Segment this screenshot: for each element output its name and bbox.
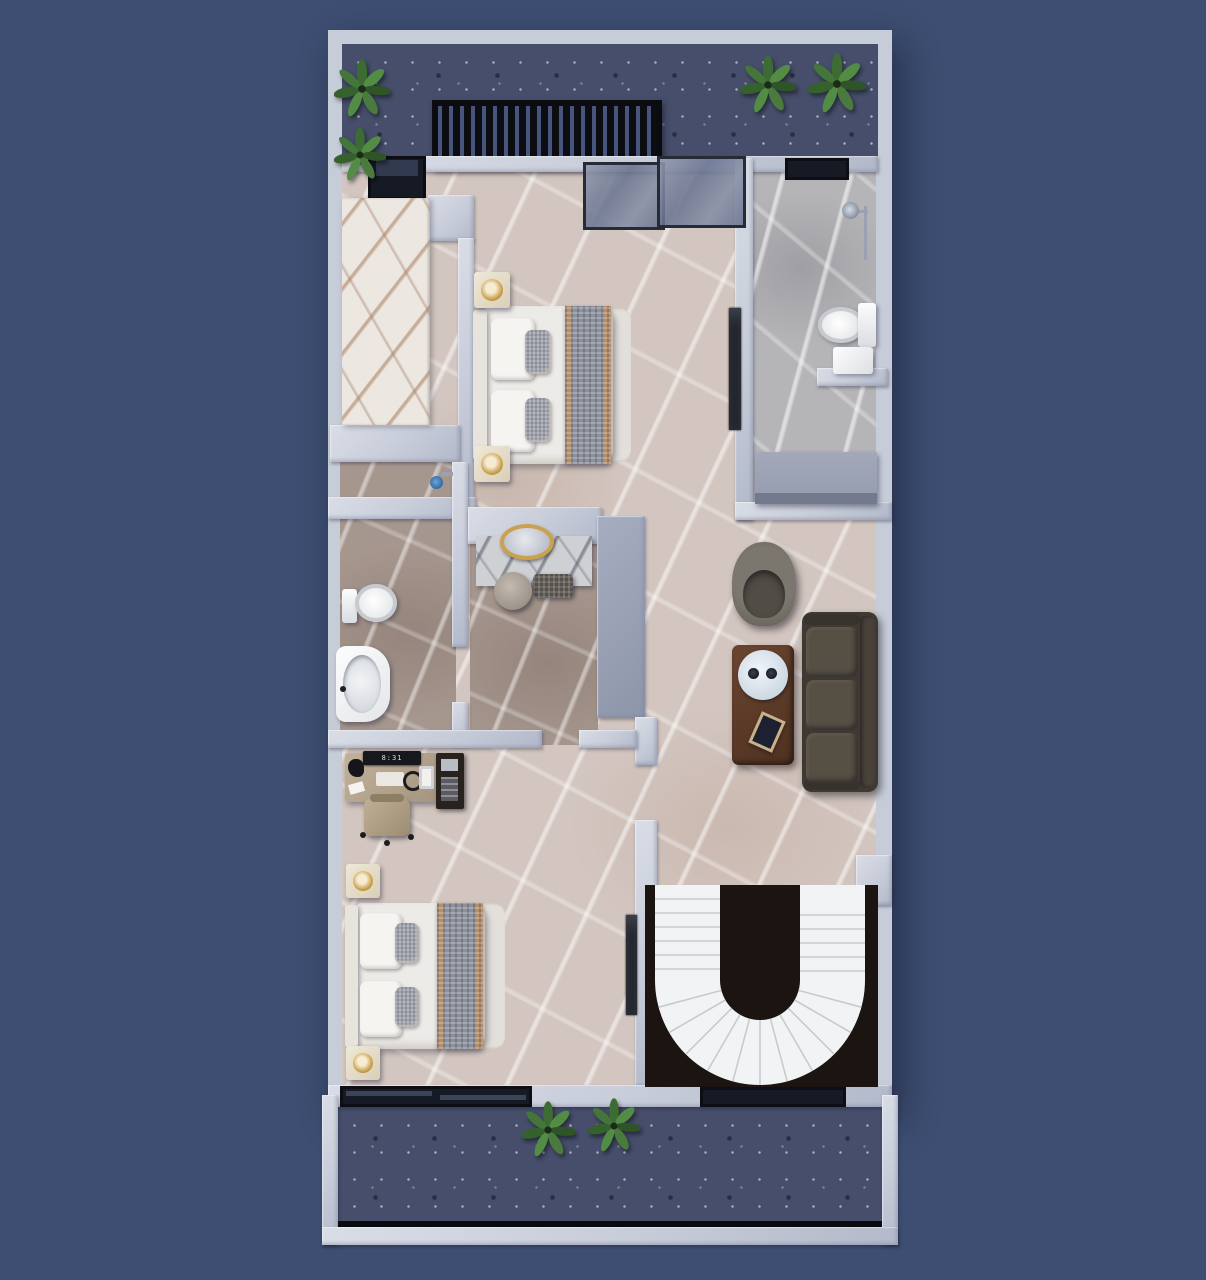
bedroom2-bed — [345, 903, 505, 1049]
ensuite-south-wall — [735, 502, 892, 520]
tablet — [419, 766, 434, 789]
armchair-seat — [743, 570, 785, 618]
potted-plant — [740, 42, 796, 128]
ensuite-terrace-window — [785, 158, 849, 180]
nightstand — [474, 272, 510, 308]
spiral-staircase — [645, 885, 878, 1087]
balcony-left-wall — [322, 1095, 338, 1245]
potted-plant — [808, 40, 866, 128]
bed-runner — [565, 306, 611, 464]
stairwell-balcony-window — [700, 1087, 846, 1107]
window-glass — [440, 1095, 526, 1100]
serving-tray — [738, 650, 788, 700]
bedroom2-balcony-window — [340, 1086, 532, 1107]
gold-lamp — [353, 871, 373, 891]
bathroom2-east-wall — [452, 462, 468, 647]
desk-lamp — [348, 759, 364, 777]
closet-corner-wall — [428, 195, 474, 241]
shelf-item — [441, 759, 458, 771]
gold-lamp — [481, 279, 503, 301]
sofa-seat-cushion — [806, 733, 858, 783]
sofa — [802, 612, 878, 792]
hall-divider-wall-a — [635, 717, 657, 765]
bed-runner — [437, 903, 483, 1049]
nightstand — [474, 446, 510, 482]
cup — [748, 668, 759, 679]
bed-headboard — [473, 310, 487, 460]
potted-plant — [521, 1098, 575, 1162]
glass-pane — [583, 162, 665, 230]
sink-faucet — [340, 686, 346, 692]
window-glass — [346, 1091, 432, 1096]
stair-flight-right — [800, 885, 865, 980]
sink-basin — [343, 655, 381, 713]
nightstand — [346, 1046, 380, 1080]
bathroom2-north-wall — [330, 425, 460, 462]
master-bed — [473, 306, 631, 464]
gold-lamp — [353, 1053, 373, 1073]
vanity-counter-edge — [755, 493, 877, 504]
ensuite-toilet-tank — [858, 303, 876, 347]
clock-display: 8:31 — [382, 755, 403, 762]
bed-accent-pillow — [395, 923, 419, 963]
bed-accent-pillow — [395, 987, 419, 1027]
terrace-sliding-glass-door — [583, 156, 740, 228]
shower-rail — [864, 206, 867, 260]
balcony-right-wall — [882, 1095, 898, 1245]
bed-accent-pillow — [525, 330, 551, 374]
dressing-bench — [533, 574, 573, 598]
cup — [766, 668, 777, 679]
ensuite-vanity-counter — [755, 452, 877, 504]
glass-pane — [657, 156, 746, 228]
potted-plant — [334, 124, 386, 186]
sofa-armrest — [804, 614, 860, 625]
armchair — [732, 542, 796, 626]
potted-plant — [334, 56, 390, 122]
shower-fixture-arm — [441, 472, 453, 476]
desk-pad — [376, 772, 404, 786]
bathroom-storage-box — [833, 347, 873, 374]
pedestal-sink — [336, 646, 390, 722]
nightstand — [346, 864, 380, 898]
dressing-stool — [494, 572, 532, 610]
gold-lamp — [481, 453, 503, 475]
floor-plan-render: 8:31 — [0, 0, 1206, 1280]
chair-wheel — [360, 832, 366, 838]
shower-head — [842, 202, 859, 219]
book — [748, 711, 786, 753]
bed-accent-pillow — [525, 398, 551, 442]
sofa-seat-cushion — [806, 680, 858, 730]
toilet — [355, 584, 397, 622]
wardrobe-cabinet — [597, 516, 645, 718]
papers — [348, 781, 365, 795]
balcony-parapet — [322, 1227, 898, 1245]
bed-headboard — [345, 905, 358, 1047]
chair-wheel — [408, 834, 414, 840]
chair-wheel — [384, 840, 390, 846]
chair-backrest — [370, 794, 404, 802]
ensuite-door — [729, 308, 741, 430]
round-gold-mirror — [500, 524, 554, 560]
office-chair — [364, 798, 410, 836]
shower-fixture — [430, 476, 443, 489]
monitor-clock: 8:31 — [363, 751, 421, 765]
shelf-unit — [436, 753, 464, 809]
potted-plant — [588, 1095, 640, 1157]
shelf-item — [441, 777, 458, 801]
closet-marble-counter — [342, 198, 430, 425]
bedroom2-north-wall-b — [579, 730, 637, 748]
sofa-seat-cushion — [806, 627, 858, 677]
bedroom2-door — [626, 915, 637, 1015]
sofa-back-cushions — [860, 616, 875, 788]
coffee-table — [732, 645, 794, 765]
bedroom2-north-wall-a — [328, 730, 542, 748]
